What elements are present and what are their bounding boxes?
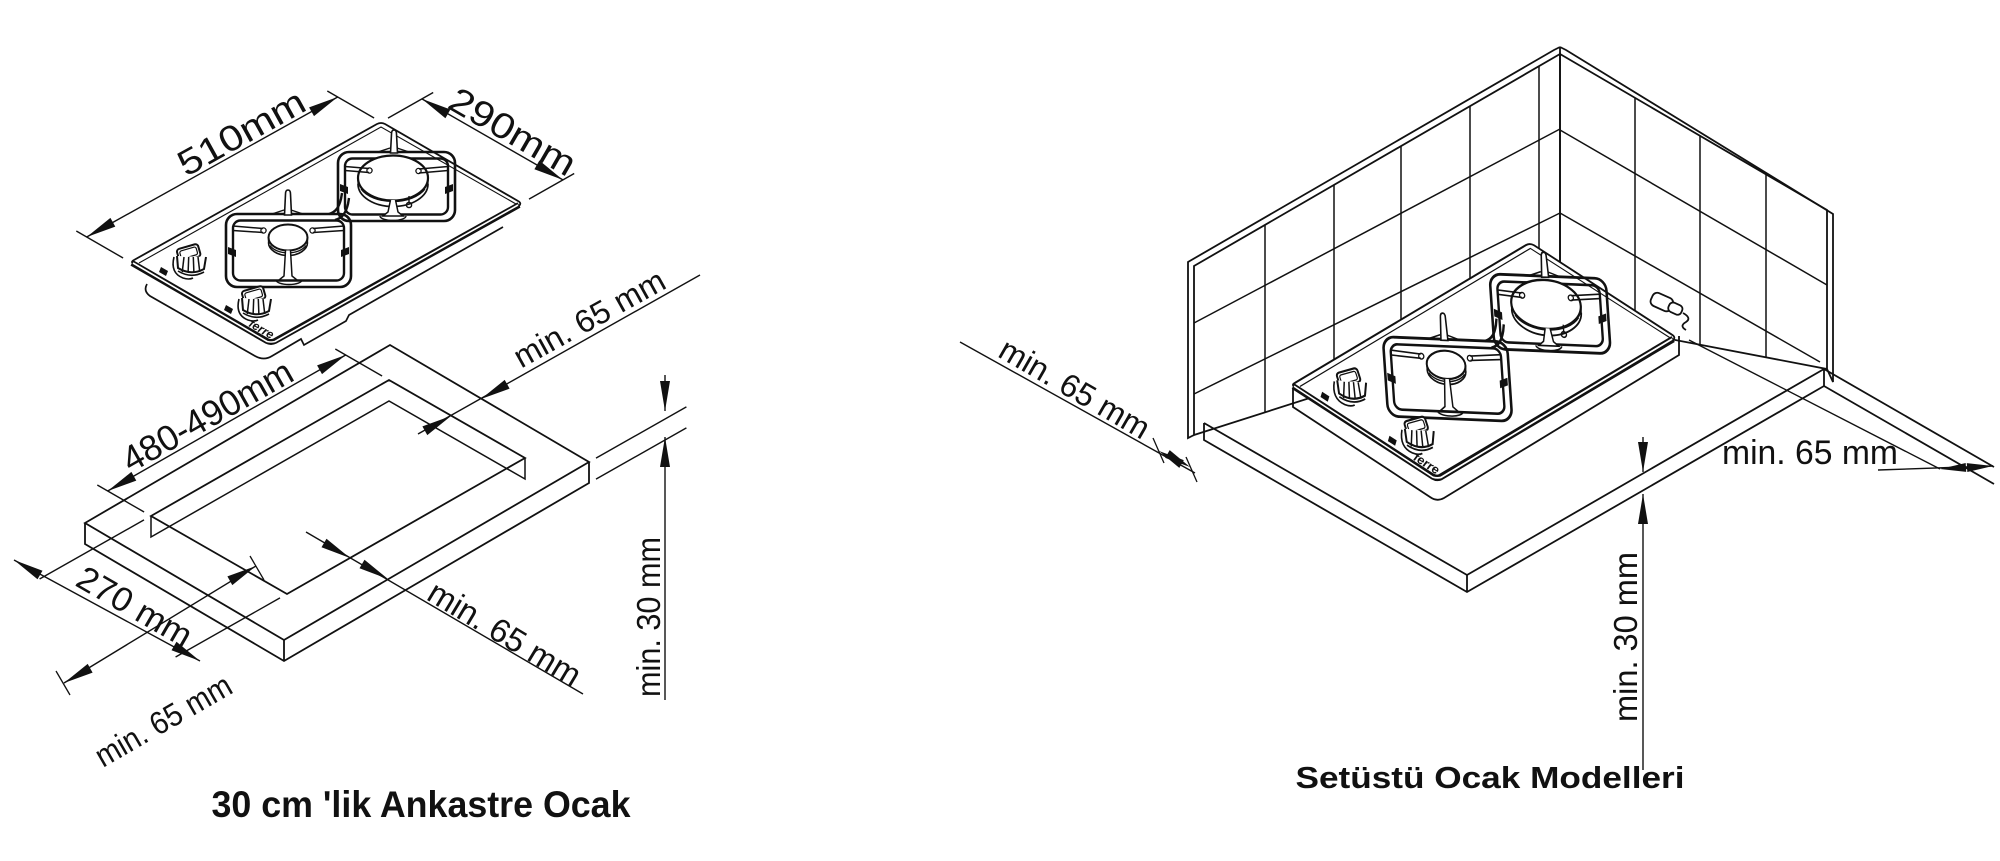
svg-text:30 cm 'lik Ankastre Ocak: 30 cm 'lik Ankastre Ocak <box>212 784 631 825</box>
svg-text:min. 65 mm: min. 65 mm <box>1722 434 1898 472</box>
svg-text:min. 30 mm: min. 30 mm <box>630 537 667 697</box>
svg-text:Setüstü Ocak Modelleri: Setüstü Ocak Modelleri <box>1296 760 1685 795</box>
svg-text:min. 30 mm: min. 30 mm <box>1607 552 1644 722</box>
